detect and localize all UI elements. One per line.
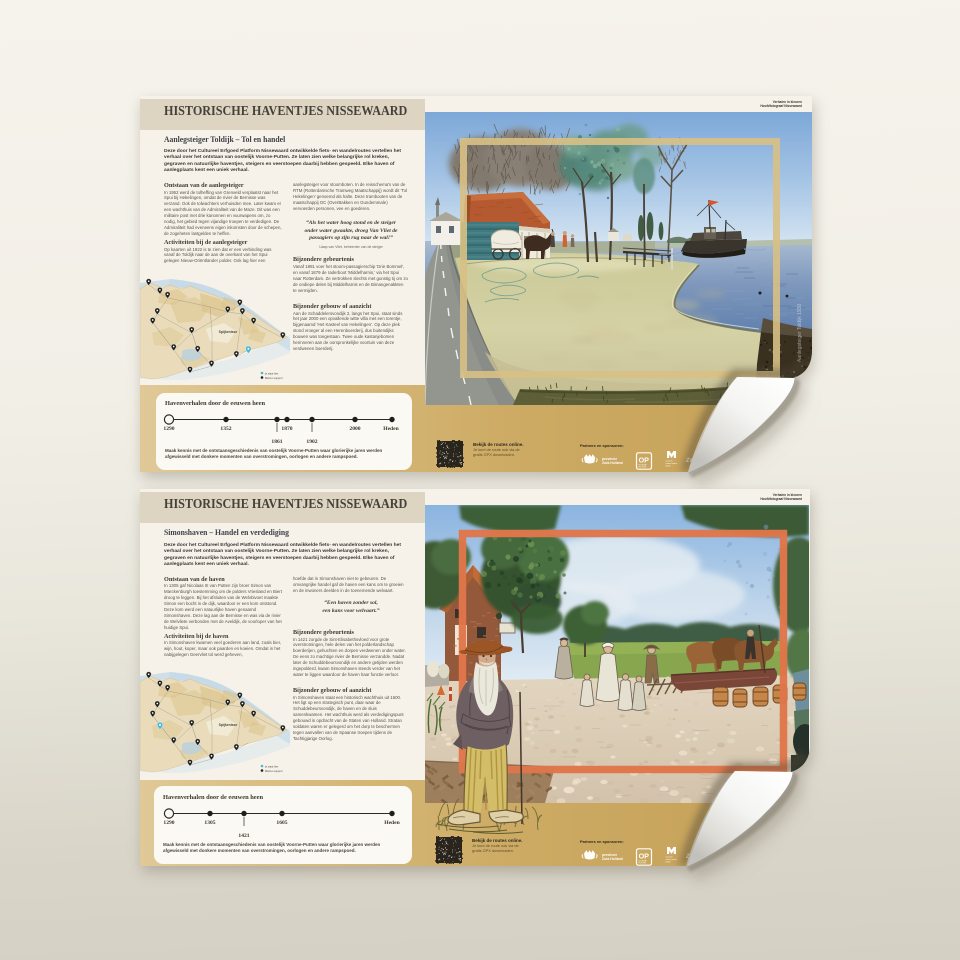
svg-text:OP: OP [639,455,650,464]
svg-text:Meld-o-support: Meld-o-support [265,769,283,773]
svg-text:Zuid-Holland: Zuid-Holland [602,857,623,861]
svg-text:OP: OP [639,851,650,860]
svg-text:Zuid-Holland: Zuid-Holland [602,461,623,465]
svg-text:PUTTEN: PUTTEN [638,863,646,865]
svg-text:je staat hier: je staat hier [264,371,279,375]
svg-text:je staat hier: je staat hier [264,764,279,768]
svg-text:Meld-o-support: Meld-o-support [265,376,283,380]
svg-text:Spijkenisse: Spijkenisse [219,330,238,334]
svg-text:PUTTEN: PUTTEN [638,467,646,469]
svg-text:Spijkenisse: Spijkenisse [219,723,238,727]
